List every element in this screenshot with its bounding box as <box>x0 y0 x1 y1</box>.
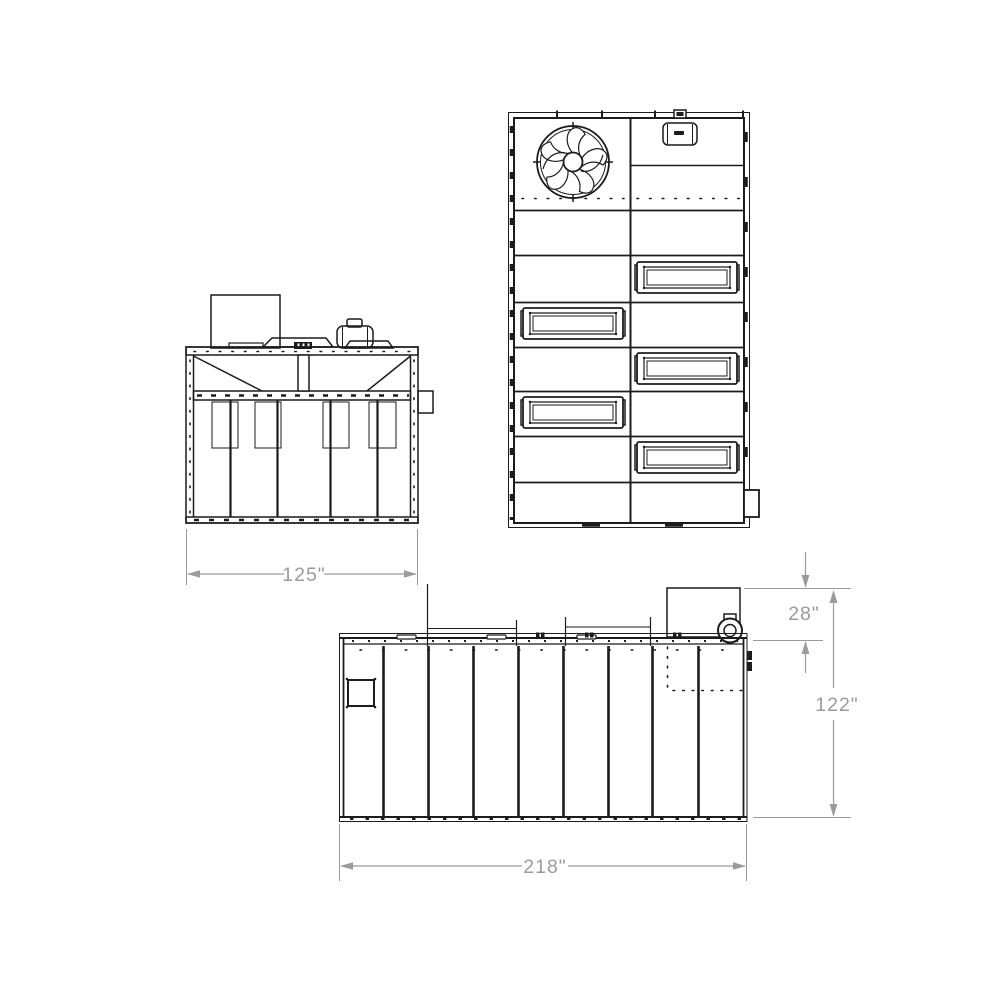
center-duct <box>298 355 309 391</box>
top-view <box>509 110 760 528</box>
access-hatch <box>521 308 625 339</box>
dimension-side-length: 218" <box>340 824 747 881</box>
drawing-page: 125" 218" 28" 122" <box>0 0 1000 1000</box>
dimension-fan-stack-height: 28" <box>744 552 851 673</box>
outlet-protrusion <box>744 490 759 517</box>
front-view <box>186 295 433 523</box>
access-hatch <box>635 262 739 293</box>
access-hatch <box>635 353 739 384</box>
dimension-label-overall-height: 122" <box>815 694 858 716</box>
hinge <box>747 662 752 671</box>
dimension-front-width: 125" <box>187 529 418 586</box>
side-outlet-box <box>418 391 433 413</box>
access-hatch <box>521 397 625 428</box>
access-hatch <box>635 442 739 473</box>
hinge <box>747 651 752 660</box>
technical-drawing-canvas: 125" 218" 28" 122" <box>0 0 1000 1000</box>
dimension-label-fan-stack-height: 28" <box>788 603 820 625</box>
inspection-window <box>346 678 377 709</box>
fan-hub <box>564 153 583 172</box>
lifting-lug <box>397 635 416 639</box>
lifting-lug <box>487 635 506 639</box>
air-tank-plan <box>663 110 697 145</box>
filter-cartridge <box>323 402 349 448</box>
dimension-label-side-length: 218" <box>523 856 566 878</box>
panel-seams <box>384 646 699 816</box>
center-vent <box>294 342 312 349</box>
exhaust-fan <box>533 122 613 202</box>
dimension-label-front-width: 125" <box>282 564 325 586</box>
filter-cartridge <box>369 402 396 448</box>
side-view <box>339 584 752 822</box>
filter-cartridge <box>212 402 238 448</box>
